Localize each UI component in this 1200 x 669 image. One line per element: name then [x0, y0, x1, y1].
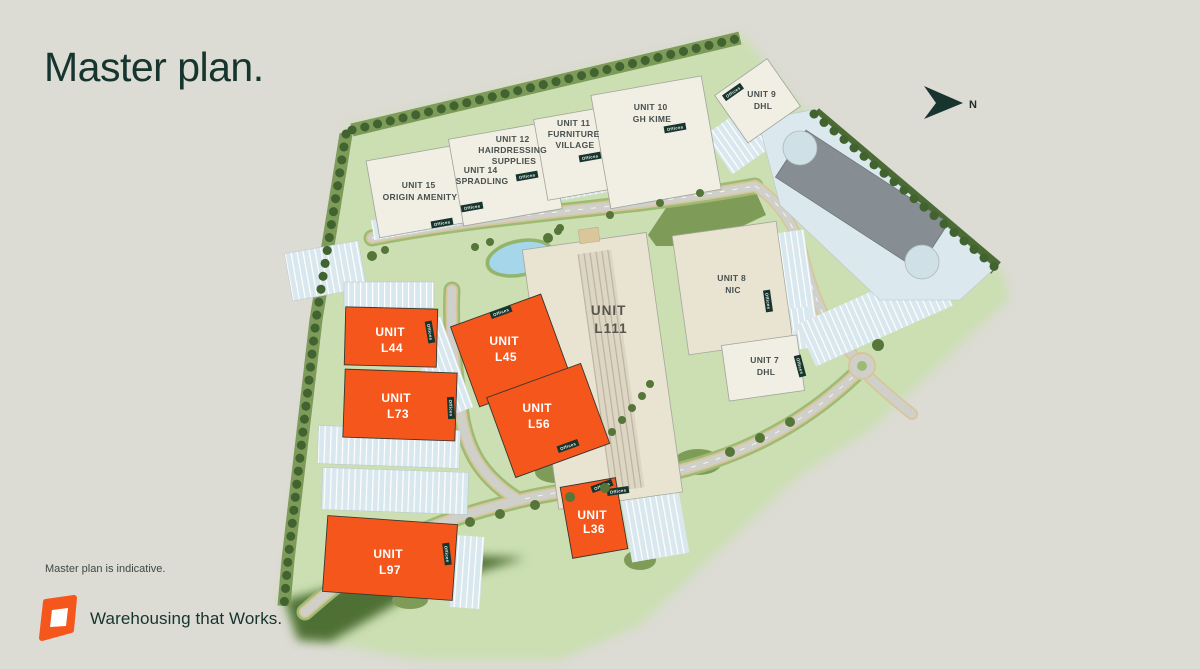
north-arrow-icon	[924, 86, 963, 119]
page-title: Master plan.	[44, 44, 264, 91]
masterplan-map: Offices Offices Offices Offices Offices …	[0, 0, 1200, 669]
unit-l73-building	[343, 369, 457, 441]
masterplan-page: Offices Offices Offices Offices Offices …	[0, 0, 1200, 669]
north-label: N	[969, 99, 977, 111]
north-indicator: N	[924, 86, 977, 119]
brand-tagline: Warehousing that Works.	[90, 609, 282, 629]
brand-logo-icon	[38, 595, 78, 642]
brand-row: Warehousing that Works.	[38, 595, 282, 642]
unit-10-building	[591, 76, 721, 209]
disclaimer-text: Master plan is indicative.	[45, 563, 165, 575]
offices-tag: Offices	[448, 400, 454, 417]
